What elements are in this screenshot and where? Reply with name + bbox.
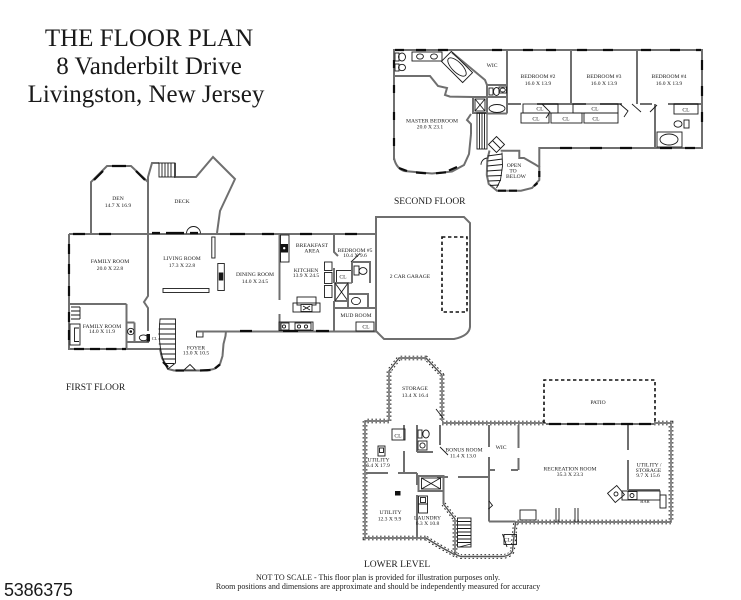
svg-text:16.0 X 13.9: 16.0 X 13.9 bbox=[525, 81, 552, 87]
svg-text:THE FLOOR PLAN: THE FLOOR PLAN bbox=[45, 25, 253, 52]
svg-text:8 Vanderbilt Drive: 8 Vanderbilt Drive bbox=[56, 53, 242, 80]
svg-text:SECOND FLOOR: SECOND FLOOR bbox=[394, 197, 466, 207]
svg-text:14.0 X 11.9: 14.0 X 11.9 bbox=[89, 329, 115, 335]
svg-text:CL: CL bbox=[536, 107, 544, 113]
svg-text:17.3 X 22.8: 17.3 X 22.8 bbox=[169, 263, 196, 269]
svg-text:5386375: 5386375 bbox=[4, 580, 73, 600]
svg-text:DINING ROOM: DINING ROOM bbox=[236, 272, 274, 278]
svg-text:CL: CL bbox=[339, 275, 347, 281]
svg-text:DEN: DEN bbox=[112, 196, 124, 202]
svg-text:CL: CL bbox=[394, 434, 402, 440]
svg-text:20.0 X 23.1: 20.0 X 23.1 bbox=[417, 125, 444, 131]
svg-text:CL: CL bbox=[592, 117, 600, 123]
svg-text:13.9 X 24.5: 13.9 X 24.5 bbox=[293, 273, 320, 279]
svg-text:CL: CL bbox=[591, 107, 599, 113]
svg-text:20.0 X 22.8: 20.0 X 22.8 bbox=[97, 266, 124, 272]
svg-text:AREA: AREA bbox=[304, 249, 319, 255]
svg-text:2 CAR GARAGE: 2 CAR GARAGE bbox=[390, 274, 431, 280]
svg-text:14.0 X 24.5: 14.0 X 24.5 bbox=[242, 279, 269, 285]
svg-text:12.3 X 9.9: 12.3 X 9.9 bbox=[378, 517, 402, 523]
svg-text:FIRST FLOOR: FIRST FLOOR bbox=[66, 383, 126, 393]
svg-text:LOWER LEVEL: LOWER LEVEL bbox=[364, 560, 430, 570]
svg-text:STORAGE: STORAGE bbox=[402, 386, 428, 392]
svg-text:CL: CL bbox=[362, 325, 370, 331]
svg-text:BEDROOM #4: BEDROOM #4 bbox=[652, 74, 687, 80]
svg-text:16.0 X 13.9: 16.0 X 13.9 bbox=[656, 81, 683, 87]
svg-text:MUD ROOM: MUD ROOM bbox=[340, 313, 371, 319]
svg-text:13.4 X 16.4: 13.4 X 16.4 bbox=[402, 393, 429, 399]
svg-text:PATIO: PATIO bbox=[590, 400, 605, 406]
svg-text:WIC: WIC bbox=[496, 445, 507, 451]
svg-text:FAMILY ROOM: FAMILY ROOM bbox=[91, 259, 129, 265]
svg-text:6.4 X 17.9: 6.4 X 17.9 bbox=[366, 463, 390, 469]
svg-text:BELOW: BELOW bbox=[506, 174, 527, 180]
svg-text:UTILITY: UTILITY bbox=[379, 510, 401, 516]
svg-text:14.7 X 16.9: 14.7 X 16.9 bbox=[105, 203, 132, 209]
svg-text:LIVING ROOM: LIVING ROOM bbox=[163, 256, 200, 262]
svg-text:9.7 X 15.6: 9.7 X 15.6 bbox=[636, 473, 660, 479]
svg-text:11.4 X 13.0: 11.4 X 13.0 bbox=[450, 454, 476, 460]
svg-text:10.4 X 9.6: 10.4 X 9.6 bbox=[343, 253, 367, 259]
svg-text:WIC: WIC bbox=[487, 63, 498, 69]
svg-text:DECK: DECK bbox=[174, 199, 189, 205]
svg-text:BEDROOM #3: BEDROOM #3 bbox=[587, 74, 622, 80]
svg-text:CL: CL bbox=[504, 538, 512, 544]
svg-text:CL: CL bbox=[562, 117, 570, 123]
svg-text:BAR: BAR bbox=[640, 499, 650, 504]
svg-text:13.0 X 10.5: 13.0 X 10.5 bbox=[183, 351, 210, 357]
svg-text:16.0 X 13.9: 16.0 X 13.9 bbox=[591, 81, 618, 87]
svg-text:CL: CL bbox=[532, 117, 540, 123]
svg-text:NOT TO SCALE - This floor plan: NOT TO SCALE - This floor plan is provid… bbox=[256, 573, 500, 582]
svg-text:Room positions and dimensions: Room positions and dimensions are approx… bbox=[216, 582, 540, 591]
svg-text:CL: CL bbox=[152, 336, 158, 341]
svg-text:35.3 X 23.3: 35.3 X 23.3 bbox=[557, 472, 584, 478]
svg-text:6.3 X 10.8: 6.3 X 10.8 bbox=[416, 521, 440, 527]
svg-text:BEDROOM #2: BEDROOM #2 bbox=[521, 74, 556, 80]
svg-text:CL: CL bbox=[682, 108, 690, 114]
svg-text:Livingston, New Jersey: Livingston, New Jersey bbox=[28, 81, 265, 108]
